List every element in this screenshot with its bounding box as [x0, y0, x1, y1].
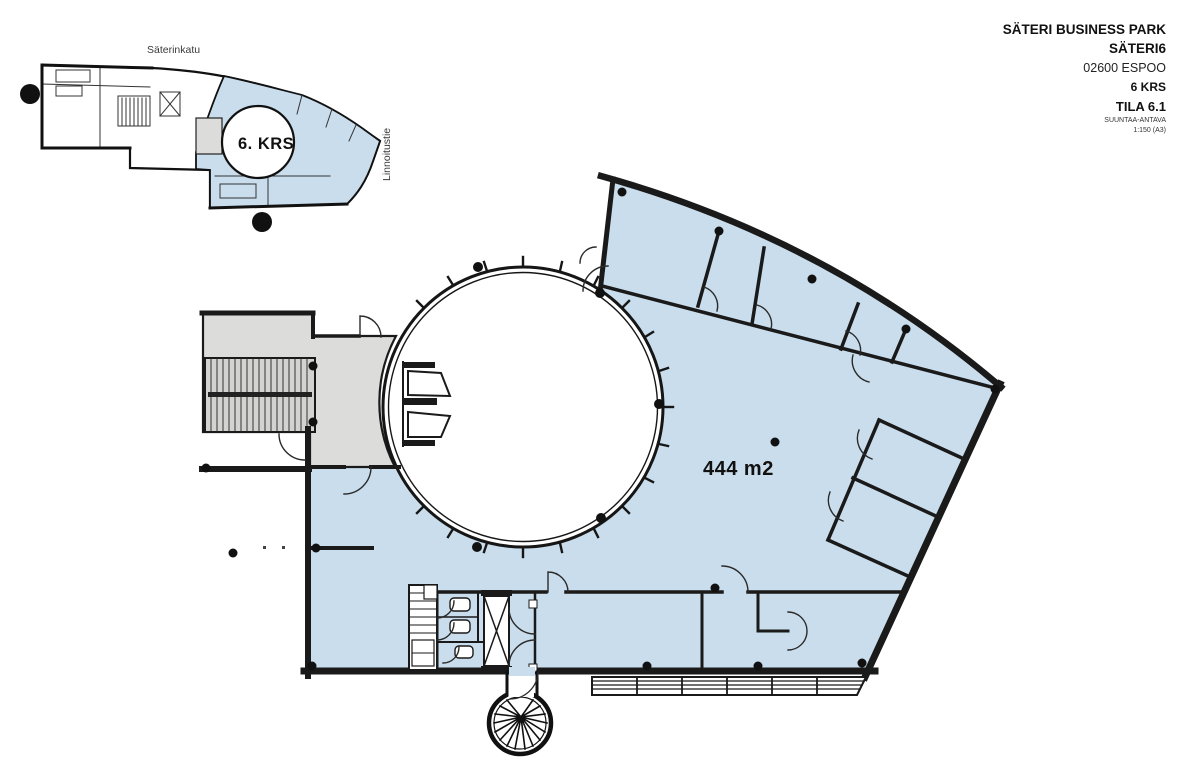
title-address: 02600 ESPOO	[1003, 59, 1166, 78]
spiral-staircase	[489, 667, 551, 754]
title-block: SÄTERI BUSINESS PARK SÄTERI6 02600 ESPOO…	[1003, 20, 1166, 136]
area-label: 444 m2	[703, 458, 774, 481]
stair-landing-bar	[208, 392, 312, 397]
title-disclaimer: SUUNTAA-ANTAVA	[1003, 116, 1166, 126]
mini-stair-tower-icon	[20, 84, 40, 104]
street-label-right: Linnoitustie	[381, 101, 393, 181]
main-floor-plan	[202, 176, 1002, 754]
kitchenette	[409, 585, 437, 670]
street-label-top: Säterinkatu	[147, 44, 200, 56]
shaft	[481, 590, 512, 672]
title-space: TILA 6.1	[1003, 97, 1166, 116]
balcony-strip	[592, 677, 866, 695]
survey-mark	[263, 546, 266, 549]
mini-floor-label: 6. KRS	[238, 135, 294, 154]
staircase	[205, 358, 315, 432]
title-scale: 1:150 (A3)	[1003, 126, 1166, 136]
door-handle	[529, 600, 537, 608]
title-floor: 6 KRS	[1003, 78, 1166, 97]
title-building: SÄTERI6	[1003, 39, 1166, 58]
mini-floor-plan	[20, 65, 380, 232]
mini-spiral-stair-icon	[252, 212, 272, 232]
survey-mark	[282, 546, 285, 549]
mini-core	[196, 118, 222, 154]
title-project: SÄTERI BUSINESS PARK	[1003, 20, 1166, 39]
floor-plan-sheet: Säterinkatu Linnoitustie 6. KRS 444 m2 S…	[0, 0, 1200, 775]
